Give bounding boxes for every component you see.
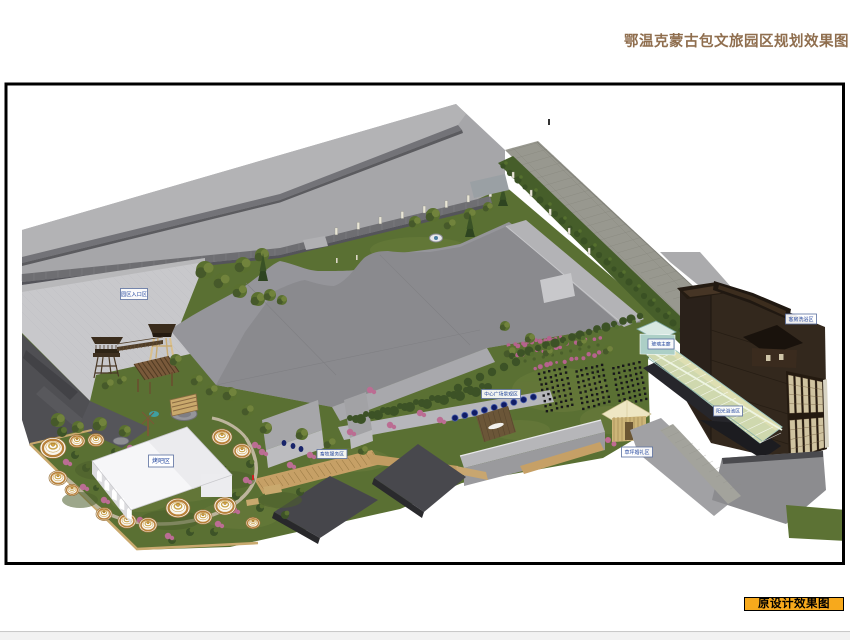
svg-text:玻璃主廊: 玻璃主廊 bbox=[651, 341, 670, 348]
svg-text:畜牧服务区: 畜牧服务区 bbox=[320, 451, 344, 458]
svg-text:客房洗浴区: 客房洗浴区 bbox=[788, 316, 813, 323]
svg-text:阳光浴池区: 阳光浴池区 bbox=[716, 408, 740, 415]
svg-text:园区入口区: 园区入口区 bbox=[121, 291, 147, 298]
svg-text:草坪婚礼区: 草坪婚礼区 bbox=[624, 449, 649, 456]
svg-text:中心广场景观区: 中心广场景观区 bbox=[484, 391, 518, 398]
svg-text:烤吧区: 烤吧区 bbox=[152, 457, 170, 465]
